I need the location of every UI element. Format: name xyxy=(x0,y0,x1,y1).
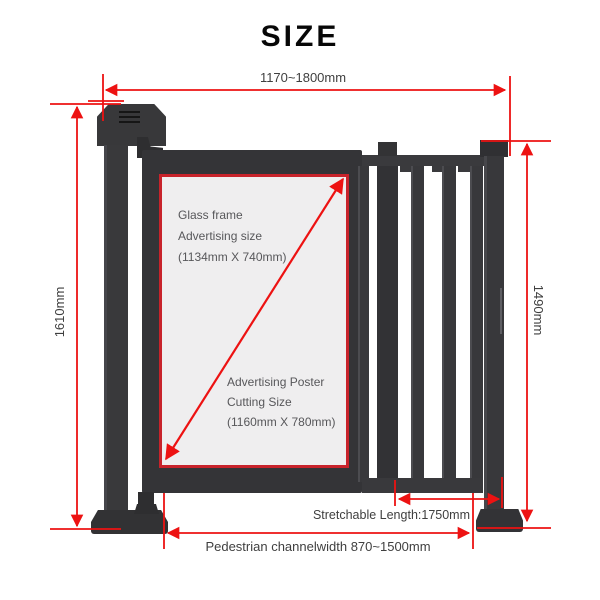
dim-label-stretchable: Stretchable Length:1750mm xyxy=(300,508,470,522)
glass-frame-line: Advertising size xyxy=(178,226,286,247)
dim-label-left-height: 1610mm xyxy=(52,277,68,347)
glass-frame-line: Glass frame xyxy=(178,205,286,226)
glass-frame-annotation: Glass frame Advertising size (1134mm X 7… xyxy=(178,205,286,268)
gate-size-diagram: SIZE xyxy=(0,0,600,600)
poster-line: Advertising Poster xyxy=(227,372,335,392)
poster-cutting-annotation: Advertising Poster Cutting Size (1160mm … xyxy=(227,372,335,432)
dim-label-pedestrian: Pedestrian channelwidth 870~1500mm xyxy=(168,539,468,554)
poster-line: Cutting Size xyxy=(227,392,335,412)
page-title: SIZE xyxy=(0,20,600,54)
poster-line: (1160mm X 780mm) xyxy=(227,412,335,432)
dim-label-top-width: 1170~1800mm xyxy=(238,70,368,85)
glass-frame-line: (1134mm X 740mm) xyxy=(178,247,286,268)
dim-label-right-height: 1490mm xyxy=(530,275,546,345)
